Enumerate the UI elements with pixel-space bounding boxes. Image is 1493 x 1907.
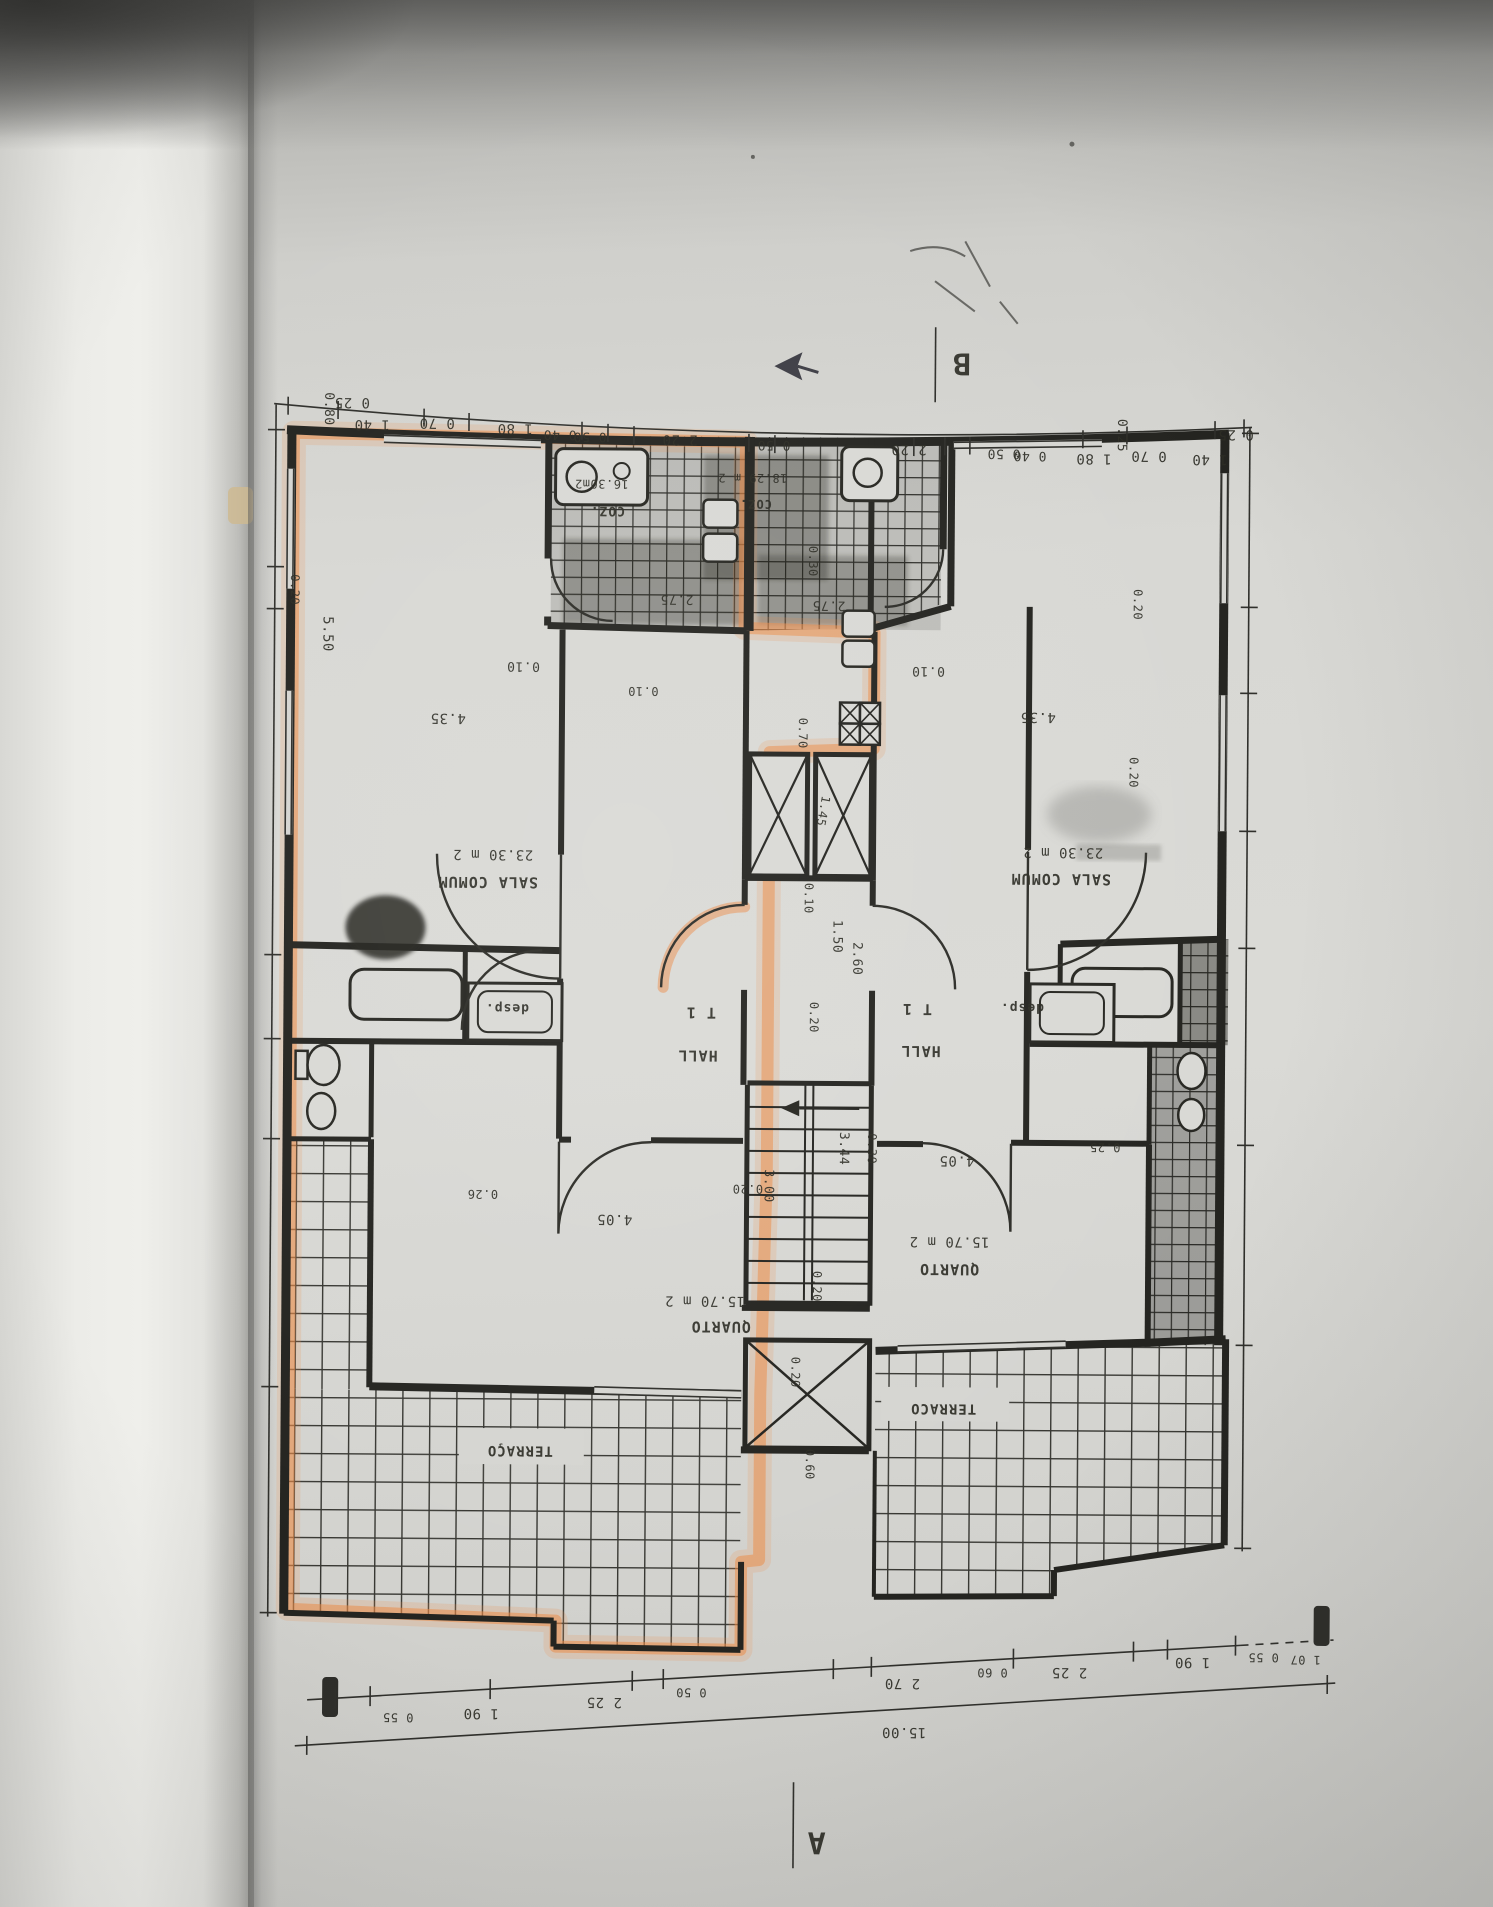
dim-left: 5.50 (319, 616, 335, 652)
section-marker-b: B (952, 345, 971, 380)
dim-top: 2 20 (891, 441, 927, 457)
dim-top: 1 40 (354, 416, 390, 432)
section-marker-a: A (806, 1824, 825, 1859)
room-hall-left: HALL (677, 1046, 717, 1064)
dim-core: 0.70 (796, 718, 810, 749)
door-arcs (434, 546, 1148, 1238)
sala-door-right (1027, 852, 1146, 971)
dim-room: 0.30 (865, 1133, 879, 1164)
stair-tread (748, 1261, 868, 1262)
dim-top: 1 40 (1192, 451, 1228, 467)
stair-tread (748, 1239, 868, 1240)
dim-core: 0.10 (507, 658, 540, 673)
dim-core: 2.60 (849, 942, 864, 975)
dim-core: 0.10 (802, 883, 816, 914)
kitchen-burner-left (614, 463, 630, 479)
dim-room: 4.05 (597, 1211, 633, 1227)
smudge (1047, 786, 1151, 843)
type-label-left: T 1 (686, 1003, 716, 1021)
dim-top: 2 20 (662, 431, 698, 447)
room-sala-right: SALA COMUM (1011, 870, 1111, 889)
dim-core: 0.20 (807, 1002, 821, 1033)
dim-right: 0.20 (1126, 757, 1140, 788)
dim-top: 1 80 (1076, 450, 1112, 466)
photo-corner-shadow (0, 0, 420, 140)
dim-core: 0.10 (912, 663, 945, 678)
bidet-right (1178, 1099, 1204, 1131)
dim-room: 0.25 (1089, 1140, 1120, 1154)
dim-bottom: 1 90 (463, 1705, 499, 1721)
section-line-b (935, 327, 936, 402)
room-hall-right: HALL (901, 1042, 941, 1060)
section-line-a (793, 1782, 794, 1868)
area-sala-left: 23.30 m 2 (453, 846, 533, 863)
dim-bottom: 2 25 (586, 1694, 622, 1710)
dim-total-width: 15.00 (882, 1724, 927, 1740)
area-coz-left: 16.30m2 (575, 477, 629, 491)
dim-top: 0 40 (1013, 448, 1046, 463)
dim-core: 0.60 (803, 1449, 817, 1480)
dim-right: 0.20 (1131, 589, 1145, 620)
dim-left: 0.20 (288, 574, 302, 605)
entrance-door-left (661, 904, 745, 988)
dim-bottom: 0 60 (977, 1666, 1008, 1680)
area-quarto-right: 15.70 m 2 (909, 1233, 989, 1250)
dim-bottom: 1 07 (1290, 1653, 1321, 1667)
dim-top: 0 40 (543, 426, 576, 441)
dim-room: 0.26 (467, 1187, 498, 1201)
dim-room: 4.05 (939, 1152, 975, 1168)
dim-top: 0 25 (1218, 426, 1254, 442)
dim-bottom: 2 25 (1051, 1664, 1087, 1680)
stair-tread (748, 1217, 868, 1218)
dim-room: 0.20 (810, 1271, 824, 1302)
room-desp-right: desp. (1000, 1000, 1044, 1015)
floor-plan-drawing: 0 251 400 701 800 400 502 200 502 200 50… (0, 0, 1493, 1907)
dim-room: 0.20 (732, 1182, 763, 1196)
type-label-right: T 1 (902, 1000, 932, 1018)
bathtub-left (350, 969, 462, 1020)
dim-bottom: 2 70 (884, 1675, 920, 1691)
column-marker (1314, 1606, 1330, 1646)
kitchen-sink-right (854, 459, 882, 487)
dim-core: 3.44 (836, 1132, 851, 1165)
dim-bottom: 0 55 (1248, 1650, 1279, 1664)
dim-right: 0.25 (1114, 419, 1129, 452)
area-coz-right: 18.29 m 2 (718, 471, 788, 485)
dim-core: 2.75 (812, 597, 845, 612)
dim-top: 1 80 (497, 420, 533, 436)
dim-bottom: 1 90 (1174, 1654, 1210, 1670)
dim-room: 4.35 (1020, 709, 1056, 725)
dim-core: 0.10 (628, 684, 659, 698)
dim-left: 0.80 (321, 392, 336, 425)
room-quarto-left: QUARTO (691, 1318, 751, 1336)
dim-top: 0 70 (419, 415, 455, 431)
toilet-tank-left (295, 1051, 307, 1079)
toilet-left (307, 1045, 339, 1085)
area-quarto-left: 15.70 m 2 (665, 1292, 745, 1309)
room-terraco-left: TERRAÇO (487, 1442, 553, 1458)
dim-bottom: 0 55 (382, 1710, 413, 1724)
room-desp-left: desp. (485, 1000, 529, 1015)
toilet-right (1177, 1053, 1205, 1089)
dim-core: 0.20 (788, 1357, 802, 1388)
stair-direction-arrow (781, 1100, 799, 1116)
dim-top: 0 50 (757, 437, 790, 452)
photo-of-floor-plan-page: 0 251 400 701 800 400 502 200 502 200 50… (0, 0, 1493, 1907)
bidet-left (307, 1093, 335, 1129)
room-coz-left: COZ. (590, 503, 625, 518)
dim-top: 0 70 (1131, 448, 1167, 464)
dim-core: 1.50 (829, 920, 844, 953)
stair-tread (749, 1129, 869, 1130)
room-terraco-right: TERRACO (910, 1400, 976, 1416)
room-quarto-right: QUARTO (919, 1260, 979, 1278)
dim-room: 4.35 (430, 710, 466, 726)
dim-core: 2.75 (660, 591, 693, 606)
room-coz-right: COZ. (739, 497, 772, 511)
door-blob (345, 895, 425, 960)
stair-tread (748, 1283, 868, 1284)
dim-bottom: 0 50 (676, 1685, 707, 1699)
duct-shaft (840, 703, 880, 745)
sala-door-left (436, 854, 561, 979)
entrance-door-right (872, 906, 956, 990)
room-sala-left: SALA COMUM (438, 873, 538, 892)
area-sala-right: 23.30 m 2 (1023, 844, 1103, 861)
dim-core: 0.30 (806, 546, 820, 577)
stray-marks (750, 139, 1075, 324)
dim-top: 0 25 (334, 394, 370, 410)
dim-top: 0 50 (573, 429, 606, 444)
